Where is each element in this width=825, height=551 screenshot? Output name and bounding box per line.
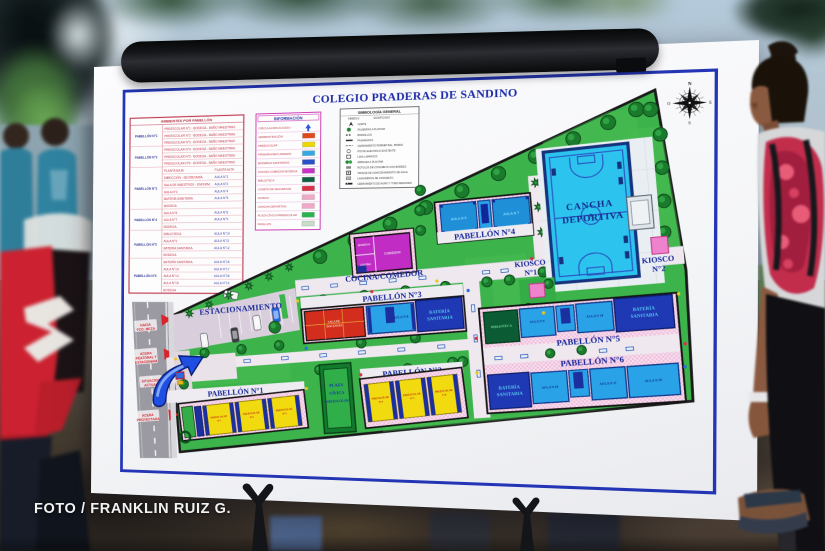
svg-text:CASETA DE SEGURIDAD: CASETA DE SEGURIDAD [258, 187, 291, 192]
svg-text:LAVA LAMPAZOS: LAVA LAMPAZOS [357, 155, 377, 159]
svg-text:AULA N°11: AULA N°11 [214, 239, 230, 243]
svg-text:BODEGA: BODEGA [164, 225, 177, 229]
svg-text:O: O [667, 102, 671, 107]
svg-text:S: S [688, 121, 690, 126]
svg-text:BATERÍAS SANITARIAS: BATERÍAS SANITARIAS [258, 160, 289, 165]
svg-text:PABELLÓN N°5: PABELLÓN N°5 [134, 241, 157, 246]
svg-text:N°2: N°2 [652, 265, 667, 274]
svg-text:AULA N°17: AULA N°17 [214, 267, 230, 271]
svg-text:AULA N°9: AULA N°9 [164, 239, 178, 243]
svg-text:PASAMANOS: PASAMANOS [358, 139, 374, 143]
svg-text:PLANTA BAJA: PLANTA BAJA [164, 168, 184, 173]
svg-text:NORTE: NORTE [358, 124, 367, 126]
svg-text:SIGNIFICADO: SIGNIFICADO [373, 116, 390, 120]
svg-text:PASILLOS: PASILLOS [258, 222, 272, 226]
svg-text:N°1: N°1 [524, 269, 538, 278]
svg-text:AULA N°10: AULA N°10 [214, 231, 230, 235]
svg-text:BATERÍA SANITARIA: BATERÍA SANITARIA [163, 260, 192, 264]
svg-text:PABELLÓN N°6: PABELLÓN N°6 [134, 273, 157, 278]
svg-text:PLAZA CÍVICA PREESCOLAR: PLAZA CÍVICA PREESCOLAR [258, 213, 297, 218]
svg-text:SÍMBOLO: SÍMBOLO [348, 117, 360, 121]
svg-text:SALA DE MAESTROS - ENFERM.: SALA DE MAESTROS - ENFERM. [164, 182, 211, 187]
svg-text:BIBLIOTECA: BIBLIOTECA [164, 232, 182, 236]
svg-text:BODEGA: BODEGA [164, 253, 177, 257]
svg-text:E: E [709, 100, 713, 105]
svg-text:AULA N°4: AULA N°4 [214, 189, 228, 193]
svg-text:AULA N°2: AULA N°2 [214, 182, 228, 187]
svg-text:AULA N°19: AULA N°19 [214, 281, 230, 285]
svg-text:COCINA COMEDOR BODEGA: COCINA COMEDOR BODEGA [258, 169, 298, 174]
svg-text:N: N [688, 80, 692, 86]
svg-text:PRIMARIA/SECUNDARIA: PRIMARIA/SECUNDARIA [258, 152, 291, 157]
svg-text:BATERÍA SANITARIA: BATERÍA SANITARIA [164, 196, 193, 201]
svg-text:AULA N°18: AULA N°18 [214, 274, 230, 278]
svg-text:AULA N°15: AULA N°15 [163, 281, 179, 285]
svg-text:AULA N°8: AULA N°8 [214, 210, 228, 214]
svg-text:PABELLÓN N°4: PABELLÓN N°4 [134, 217, 157, 222]
svg-text:PREESCOLAR: PREESCOLAR [258, 143, 277, 148]
svg-text:AULA N°16: AULA N°16 [214, 260, 230, 264]
svg-text:BATERÍA SANITARIA: BATERÍA SANITARIA [164, 246, 193, 250]
svg-text:BODEGA: BODEGA [163, 288, 176, 292]
svg-text:KIOSCO: KIOSCO [258, 196, 269, 200]
svg-text:AULA N°6: AULA N°6 [164, 211, 178, 215]
svg-text:AULA N°3: AULA N°3 [164, 190, 178, 194]
svg-text:AULA N°1: AULA N°1 [215, 175, 229, 180]
svg-text:AULA N°14: AULA N°14 [163, 274, 179, 278]
svg-text:ÁRBOLES A PLANTAR: ÁRBOLES A PLANTAR [357, 160, 383, 164]
svg-text:DIRECCIÓN - SECRETARÍA: DIRECCIÓN - SECRETARÍA [164, 174, 203, 180]
svg-text:BORDILLOS: BORDILLOS [358, 134, 373, 137]
svg-text:INFORMACIÓN: INFORMACIÓN [274, 115, 303, 121]
svg-text:PLANTA ALTA: PLANTA ALTA [215, 167, 234, 172]
svg-text:COLEGIO PRADERAS DE SANDINO: COLEGIO PRADERAS DE SANDINO [312, 87, 517, 106]
svg-text:CANCHA DEPORTIVA: CANCHA DEPORTIVA [258, 204, 287, 209]
svg-text:BODEGA: BODEGA [164, 204, 177, 208]
svg-text:PABELLÓN N°3: PABELLÓN N°3 [135, 185, 158, 191]
svg-text:PABELLÓN N°2: PABELLÓN N°2 [135, 154, 158, 160]
svg-text:PABELLÓN N°1: PABELLÓN N°1 [135, 133, 158, 139]
svg-text:AULA N°13: AULA N°13 [163, 267, 179, 271]
svg-text:AULA N°5: AULA N°5 [214, 196, 228, 200]
svg-text:AULA N°7: AULA N°7 [164, 218, 178, 222]
svg-text:BIBLIOTECA: BIBLIOTECA [258, 178, 275, 183]
svg-text:AULA N°9: AULA N°9 [214, 217, 228, 221]
svg-text:AULA N°12: AULA N°12 [214, 246, 230, 250]
